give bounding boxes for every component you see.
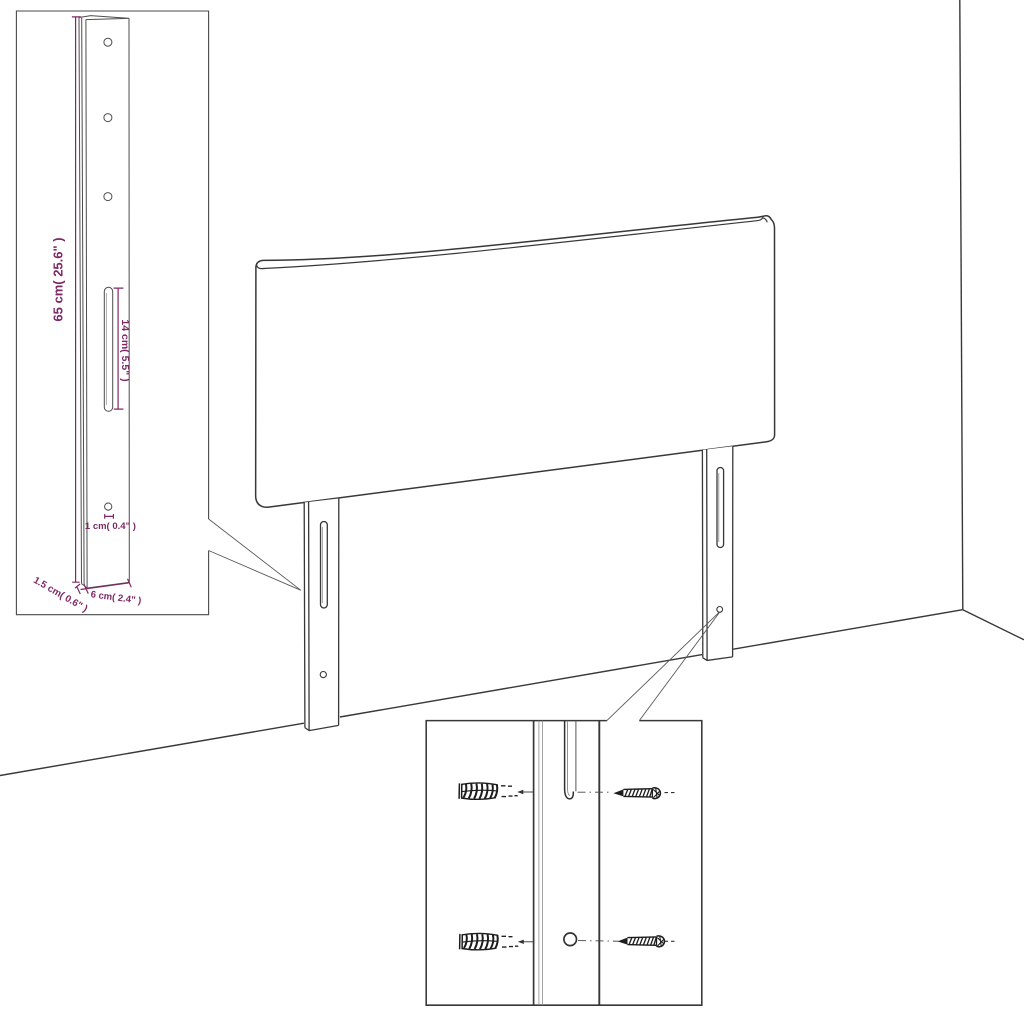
svg-text:65 cm( 25.6" ): 65 cm( 25.6" ) [51,237,66,321]
svg-text:14 cm( 5.5" ): 14 cm( 5.5" ) [119,319,131,381]
svg-text:1 cm( 0.4" ): 1 cm( 0.4" ) [85,521,136,532]
